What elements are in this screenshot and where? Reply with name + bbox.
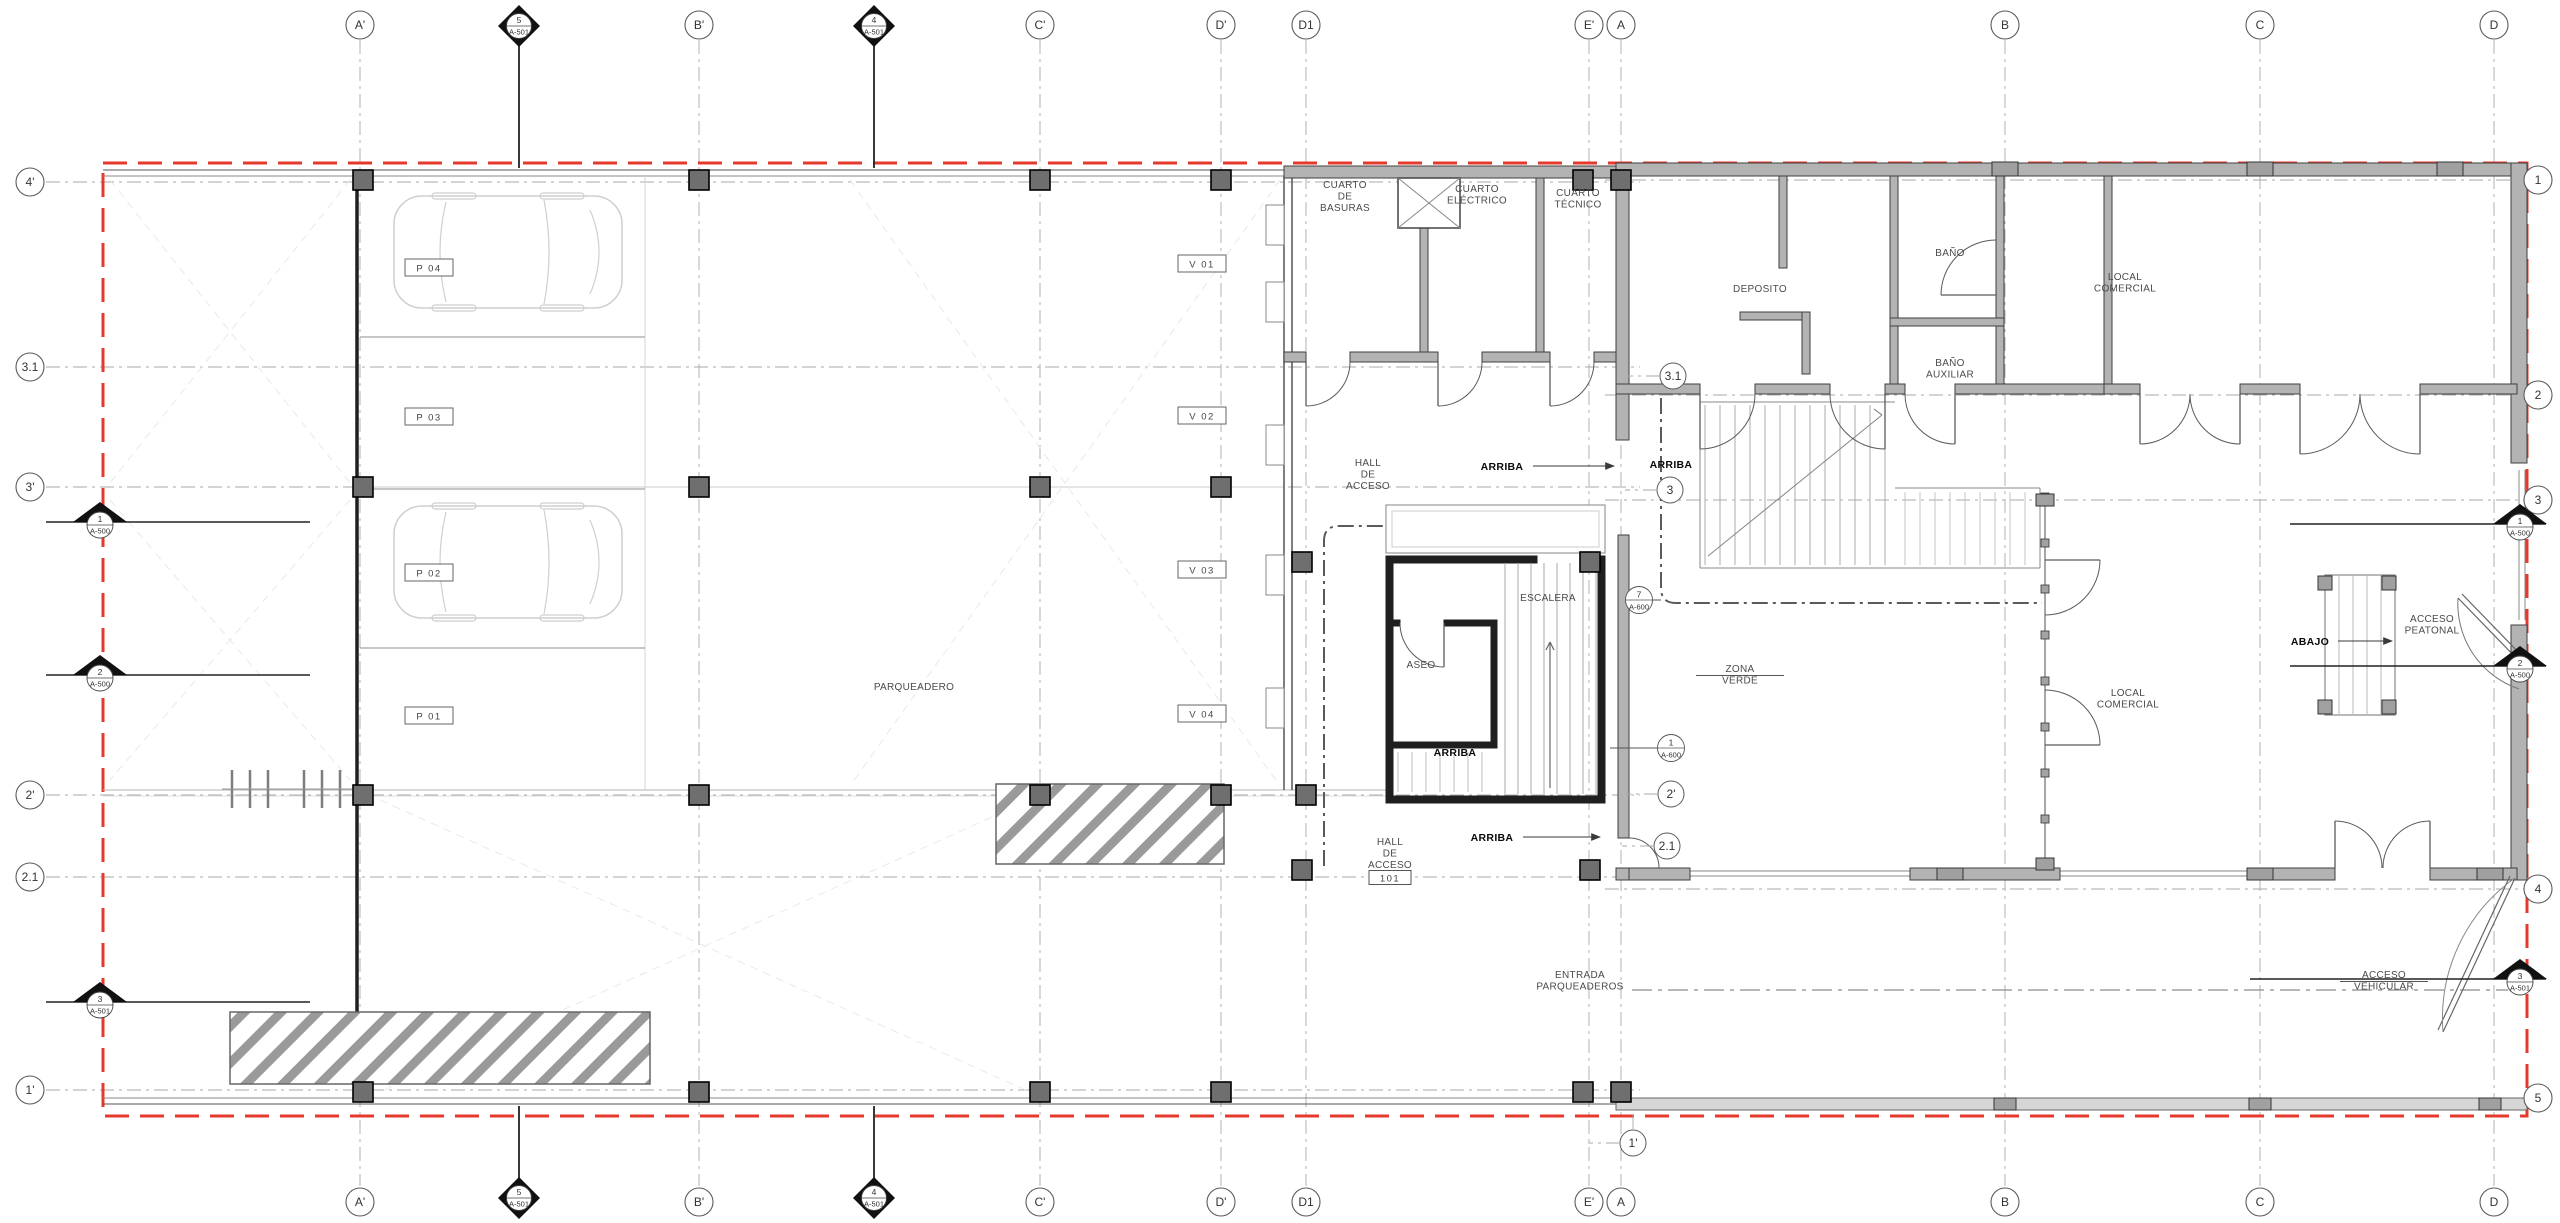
pilaster [2382, 576, 2396, 590]
section-number: 2 [2518, 658, 2523, 668]
detail-marker-1-A-600: 1A-600 [1658, 735, 1685, 762]
grid-bubble-label: 3' [26, 480, 35, 494]
stair-cores [1386, 505, 1605, 803]
grid-bubble-label: 3.1 [22, 360, 39, 374]
detail-marker-7-A-600: 7A-600 [1626, 587, 1653, 614]
label-text: BAÑO [1935, 356, 1965, 369]
label-text: VEHICULAR [2354, 982, 2414, 993]
grid-bubble-top-D': D' [1207, 11, 1235, 39]
wall [1955, 384, 2104, 394]
section-marker-5-A-501: 5A-501 [498, 1177, 540, 1219]
stall-code: P 01 [416, 712, 441, 723]
label-arriba-hall-2: ARRIBA [1471, 832, 1600, 844]
mullion [2041, 723, 2049, 731]
door-swing [1306, 362, 1350, 406]
stall-code: V 01 [1189, 260, 1215, 271]
label-text: DE [1383, 849, 1398, 860]
grid-bubble-label: C [2256, 18, 2265, 32]
label-text: ELÉCTRICO [1447, 194, 1507, 207]
sheet-number: A-501 [864, 28, 884, 37]
grid-bubble-label: 2' [26, 788, 35, 802]
door-swing [1550, 362, 1594, 406]
label-text: COMERCIAL [2094, 284, 2156, 295]
label-cuarto-tecnico: CUARTOTÉCNICO [1554, 188, 1601, 211]
mullion [2041, 769, 2049, 777]
section-number: 5 [517, 1187, 522, 1197]
grid-bubble-label: 3 [2535, 493, 2542, 507]
svg-text:3: 3 [1667, 483, 1674, 497]
pilaster [2437, 162, 2463, 176]
wall [1740, 312, 1810, 320]
column [1211, 170, 1231, 190]
pilaster [2382, 700, 2396, 714]
grid-bubble-label: D [2490, 1195, 2499, 1209]
grid-bubble-bottom-B': B' [685, 1188, 713, 1216]
grid-bubble-label: 2 [2535, 388, 2542, 402]
hatched-area [230, 1012, 650, 1084]
grid-bubble-label: D' [1216, 18, 1227, 32]
label-hall-de-acceso-low: HALLDEACCESO101 [1368, 837, 1412, 885]
grid-bubble-interior-2': 2' [1626, 781, 1684, 807]
room-number: 101 [1380, 874, 1400, 885]
stall-code: V 02 [1189, 412, 1215, 423]
pilaster [2247, 868, 2273, 880]
label-text: ACCESO [1346, 481, 1390, 492]
overhang-line [1661, 398, 2042, 603]
column [1211, 477, 1231, 497]
pilaster [1994, 1098, 2016, 1110]
grid-bubble-top-C: C [2246, 11, 2274, 39]
label-text: BAÑO [1935, 246, 1965, 259]
svg-text:1': 1' [1629, 1136, 1638, 1150]
door-swing [2045, 690, 2100, 745]
column [1580, 860, 1600, 880]
wall [1890, 318, 2004, 326]
label-text: ARRIBA [1434, 747, 1477, 759]
grid-bubble-label: C' [1035, 18, 1046, 32]
grid-bubble-label: 1' [26, 1083, 35, 1097]
stall-code: V 03 [1189, 566, 1215, 577]
column [1030, 170, 1050, 190]
label-text: ZONA [1726, 664, 1755, 675]
parking-stall-label-P-03: P 03 [405, 408, 453, 425]
label-parqueadero: PARQUEADERO [874, 682, 954, 693]
label-text: ESCALERA [1520, 593, 1576, 604]
column [353, 170, 373, 190]
label-cuarto-electrico: CUARTOELÉCTRICO [1447, 184, 1507, 207]
storefront-wall [1629, 868, 1690, 880]
sheet-number: A-501 [90, 1007, 110, 1016]
grid-bubble-top-B: B [1991, 11, 2019, 39]
grid-bubble-bottom-A: A [1607, 1188, 1635, 1216]
construction-x-lines [110, 180, 1280, 1092]
label-text: DEPOSITO [1733, 284, 1787, 295]
section-marker-1-A-500: 1A-500 [73, 502, 127, 538]
parking-stall-label-P-04: P 04 [405, 259, 453, 276]
label-local-comercial-top: LOCALCOMERCIAL [2094, 272, 2156, 295]
section-cut-lines [46, 40, 2546, 1182]
grid-bubble-label: B [2001, 18, 2009, 32]
grid-bubble-left-2': 2' [16, 781, 44, 809]
column [689, 785, 709, 805]
label-text: ASEO [1407, 660, 1436, 671]
label-text: ENTRADA [1555, 970, 1605, 981]
column [1611, 1082, 1631, 1102]
label-acceso-peatonal: ACCESOPEATONAL [2405, 614, 2460, 637]
grid-bubble-left-1': 1' [16, 1076, 44, 1104]
stair-wall [1386, 556, 1393, 803]
label-entrada-parqueaderos: ENTRADAPARQUEADEROS [1536, 970, 1623, 993]
grid-bubble-left-2.1: 2.1 [16, 863, 44, 891]
right-building-west-wall [1618, 535, 1629, 838]
door-swing [2360, 394, 2420, 454]
stair-wall [1444, 620, 1497, 626]
grid-bubble-top-A: A [1607, 11, 1635, 39]
grid-bubble-top-D1: D1 [1292, 11, 1320, 39]
svg-text:2': 2' [1667, 787, 1676, 801]
parking-stall-label-P-01: P 01 [405, 707, 453, 724]
wall [1802, 312, 1810, 374]
label-hall-de-acceso-top: HALLDEACCESO [1346, 458, 1390, 492]
right-building-west-wall [1616, 176, 1629, 440]
detail-number: 7 [1637, 590, 1642, 600]
label-text: AUXILIAR [1926, 370, 1974, 381]
label-text: ARRIBA [1650, 459, 1693, 471]
shaft [1266, 688, 1284, 728]
grid-bubble-bottom-B: B [1991, 1188, 2019, 1216]
grid-bubble-right-1: 1 [2524, 166, 2552, 194]
grid-bubble-label: A' [355, 18, 365, 32]
sheet-number: A-501 [509, 28, 529, 37]
label-text: ACCESO [2362, 970, 2406, 981]
wall [1755, 384, 1830, 394]
right-building-east-wall [2511, 163, 2527, 463]
grid-bubble-label: D1 [1298, 18, 1314, 32]
sheet-number: A-501 [2510, 984, 2530, 993]
column [1292, 552, 1312, 572]
property-boundary-red-dashed [103, 163, 2527, 1116]
right-building-north-wall [1616, 163, 2517, 176]
wall [1890, 176, 1898, 384]
column [1611, 170, 1631, 190]
shaft [1266, 555, 1284, 595]
wall [1536, 178, 1544, 354]
column [1211, 785, 1231, 805]
sheet-number: A-500 [90, 527, 110, 536]
label-bano: BAÑO [1935, 246, 1965, 259]
label-text: ABAJO [2291, 636, 2329, 648]
wall [1284, 352, 1306, 362]
column [353, 1082, 373, 1102]
parking-stall-label-V-01: V 01 [1178, 255, 1226, 272]
grid-bubble-bottom-C: C [2246, 1188, 2274, 1216]
section-number: 4 [872, 1187, 877, 1197]
section-marker-5-A-501: 5A-501 [498, 5, 540, 47]
label-text: HALL [1355, 458, 1381, 469]
sheet-number: A-501 [509, 1200, 529, 1209]
grid-bubble-label: A [1617, 1195, 1625, 1209]
label-escalera: ESCALERA [1520, 593, 1576, 604]
shaft [1266, 282, 1284, 322]
section-number: 3 [98, 994, 103, 1004]
overhang-line [1324, 526, 1386, 866]
grid-bubble-label: C' [1035, 1195, 1046, 1209]
label-text: VERDE [1722, 676, 1758, 687]
door-swing [2383, 821, 2430, 868]
door-swing [2335, 821, 2382, 868]
grid-bubble-label: A [1617, 18, 1625, 32]
wall [1350, 352, 1438, 362]
boundary-line [103, 163, 2527, 1116]
door-swing [2045, 560, 2100, 615]
label-text: ARRIBA [1471, 832, 1514, 844]
grid-bubble-bottom-D1: D1 [1292, 1188, 1320, 1216]
door-swing [2190, 394, 2240, 444]
wall [2420, 384, 2517, 394]
label-text: ACCESO [2410, 614, 2454, 625]
label-acceso-vehicular: ACCESOVEHICULAR [2340, 970, 2428, 993]
section-number: 1 [2518, 516, 2523, 526]
wall [1482, 352, 1550, 362]
column [689, 170, 709, 190]
label-zona-verde: ZONAVERDE [1696, 664, 1784, 687]
section-number: 1 [98, 514, 103, 524]
pilaster [2318, 576, 2332, 590]
grid-bubble-top-D: D [2480, 11, 2508, 39]
column [1580, 552, 1600, 572]
shaft [1266, 425, 1284, 465]
grid-bubble-label: 5 [2535, 1091, 2542, 1105]
grid-bubble-right-5: 5 [2524, 1084, 2552, 1112]
pilaster [2477, 868, 2503, 880]
section-marker-2-A-500: 2A-500 [2493, 646, 2547, 682]
grid-bubble-label: E' [1584, 18, 1594, 32]
grid-bubble-top-E': E' [1575, 11, 1603, 39]
stall-code: P 04 [416, 264, 441, 275]
storefront-wall [2430, 868, 2517, 880]
stair-wall [1386, 556, 1537, 563]
mullion [2041, 631, 2049, 639]
grid-bubble-label: D1 [1298, 1195, 1314, 1209]
label-text: PARQUEADERO [874, 682, 954, 693]
floor-plan-drawing: A'B'C'D'D1E'ABCDA'B'C'D'D1E'ABCD4'3.13'2… [0, 0, 2560, 1223]
column [689, 1082, 709, 1102]
pilaster [2318, 700, 2332, 714]
grid-bubble-interior-1': 1' [1588, 1130, 1646, 1156]
stall-code: P 02 [416, 569, 441, 580]
grid-bubble-label: C [2256, 1195, 2265, 1209]
grid-bubble-bottom-D: D [2480, 1188, 2508, 1216]
svg-text:2.1: 2.1 [1659, 839, 1676, 853]
detail-number: 1 [1669, 738, 1674, 748]
grid-bubble-top-B': B' [685, 11, 713, 39]
label-text: TÉCNICO [1554, 198, 1601, 211]
label-text: CUARTO [1323, 180, 1367, 191]
stair-wall [1598, 556, 1605, 803]
grid-bubble-top-C': C' [1026, 11, 1054, 39]
stair-wall [1386, 796, 1605, 803]
grid-bubble-left-3': 3' [16, 473, 44, 501]
grid-bubble-right-4: 4 [2524, 875, 2552, 903]
label-text: BASURAS [1320, 203, 1370, 214]
label-text: ACCESO [1368, 860, 1412, 871]
grid-bubble-bottom-C': C' [1026, 1188, 1054, 1216]
pilaster [2036, 858, 2054, 870]
column [353, 785, 373, 805]
section-number: 3 [2518, 971, 2523, 981]
parking-stall-label-V-03: V 03 [1178, 561, 1226, 578]
grid-bubble-label: 1 [2535, 173, 2542, 187]
label-text: COMERCIAL [2097, 700, 2159, 711]
pilaster [2247, 162, 2273, 176]
grid-bubble-bottom-D': D' [1207, 1188, 1235, 1216]
column [1211, 1082, 1231, 1102]
stall-code: P 03 [416, 413, 441, 424]
stair-wall [1393, 620, 1400, 626]
car-outline [394, 503, 622, 621]
section-marker-3-A-501: 3A-501 [73, 982, 127, 1018]
grid-bubble-label: D' [1216, 1195, 1227, 1209]
wall [1779, 176, 1787, 268]
door-swing [1905, 394, 1955, 444]
pilaster [2479, 1098, 2501, 1110]
column [353, 477, 373, 497]
parked-cars [394, 193, 622, 621]
column [1030, 785, 1050, 805]
car-outline [394, 193, 622, 311]
mullion [2041, 815, 2049, 823]
grid-bubble-right-3: 3 [2524, 486, 2552, 514]
parking-stall-label-V-04: V 04 [1178, 705, 1226, 722]
sheet-number: A-500 [2510, 529, 2530, 538]
wall [2104, 384, 2140, 394]
label-bano-auxiliar: BAÑOAUXILIAR [1926, 356, 1974, 381]
column [1573, 1082, 1593, 1102]
label-aseo: ASEO [1407, 660, 1436, 671]
label-text: PEATONAL [2405, 626, 2460, 637]
door-swing [2300, 394, 2360, 454]
pilaster [1937, 868, 1963, 880]
label-text: CUARTO [1455, 184, 1499, 195]
grid-bubble-right-2: 2 [2524, 381, 2552, 409]
grid-bubble-bottom-A': A' [346, 1188, 374, 1216]
label-arriba-right: ARRIBA [1650, 459, 1693, 471]
section-marker-4-A-501: 4A-501 [853, 5, 895, 47]
grid-bubble-left-3.1: 3.1 [16, 353, 44, 381]
abajo-ramp [2325, 575, 2395, 715]
grid-bubble-bottom-E': E' [1575, 1188, 1603, 1216]
sheet-number: A-500 [2510, 671, 2530, 680]
grid-bubble-label: A' [355, 1195, 365, 1209]
pilaster [2036, 494, 2054, 506]
stair-wall [1491, 620, 1497, 748]
label-cuarto-de-basuras: CUARTODEBASURAS [1320, 180, 1370, 214]
wall [1885, 384, 1905, 394]
stall-code: V 04 [1189, 710, 1215, 721]
wall [1616, 384, 1700, 394]
column [1296, 785, 1316, 805]
grid-bubble-label: 4' [26, 175, 35, 189]
parking-stall-label-V-02: V 02 [1178, 407, 1226, 424]
grid-bubble-label: B' [694, 1195, 704, 1209]
grid-bubble-interior-2.1: 2.1 [1622, 833, 1680, 859]
grid-bubble-label: B' [694, 18, 704, 32]
label-text: LOCAL [2108, 272, 2142, 283]
column [1030, 477, 1050, 497]
door-swing [1438, 362, 1482, 406]
label-arriba-stair: ARRIBA [1434, 747, 1477, 759]
label-text: DE [1361, 470, 1376, 481]
sheet-number: A-600 [1629, 603, 1649, 612]
label-text: PARQUEADEROS [1536, 982, 1623, 993]
label-local-comercial-mid: LOCALCOMERCIAL [2097, 688, 2159, 711]
grid-bubble-label: 4 [2535, 882, 2542, 896]
sheet-number: A-501 [864, 1200, 884, 1209]
label-text: LOCAL [2111, 688, 2145, 699]
wall [1996, 176, 2004, 384]
grid-bubble-label: D [2490, 18, 2499, 32]
site-edge-band [1616, 1098, 2527, 1110]
grid-bubble-label: B [2001, 1195, 2009, 1209]
grid-bubble-label: 2.1 [22, 870, 39, 884]
pilaster [2249, 1098, 2271, 1110]
column [689, 477, 709, 497]
mullion [2041, 585, 2049, 593]
sheet-number: A-600 [1661, 751, 1681, 760]
column [1573, 170, 1593, 190]
label-text: DE [1338, 192, 1353, 203]
vehicle-gate-leaf [2443, 878, 2515, 1032]
label-arriba-hall: ARRIBA [1481, 461, 1614, 473]
column [1030, 1082, 1050, 1102]
pilaster [1992, 162, 2018, 176]
sheet-number: A-500 [90, 680, 110, 689]
door-swing [2140, 394, 2190, 444]
grid-bubble-top-A': A' [346, 11, 374, 39]
svg-text:3.1: 3.1 [1665, 369, 1682, 383]
grid-bubble-left-4': 4' [16, 168, 44, 196]
label-deposito: DEPOSITO [1733, 284, 1787, 295]
section-number: 5 [517, 15, 522, 25]
mullion [2041, 539, 2049, 547]
label-text: ARRIBA [1481, 461, 1524, 473]
floor-plan-canvas: A'B'C'D'D1E'ABCDA'B'C'D'D1E'ABCD4'3.13'2… [0, 0, 2560, 1223]
parking-stall-label-P-02: P 02 [405, 564, 453, 581]
wall [1616, 868, 1629, 880]
label-text: HALL [1377, 837, 1403, 848]
section-marker-4-A-501: 4A-501 [853, 1177, 895, 1219]
shaft [1266, 205, 1284, 245]
grid-bubble-label: E' [1584, 1195, 1594, 1209]
column [1292, 860, 1312, 880]
wall [2240, 384, 2300, 394]
section-number: 4 [872, 15, 877, 25]
label-text: CUARTO [1556, 188, 1600, 199]
section-number: 2 [98, 667, 103, 677]
planter [1386, 505, 1605, 553]
grid-bubble-interior-3: 3 [1625, 477, 1683, 503]
mullion [2041, 677, 2049, 685]
section-marker-2-A-500: 2A-500 [73, 655, 127, 691]
